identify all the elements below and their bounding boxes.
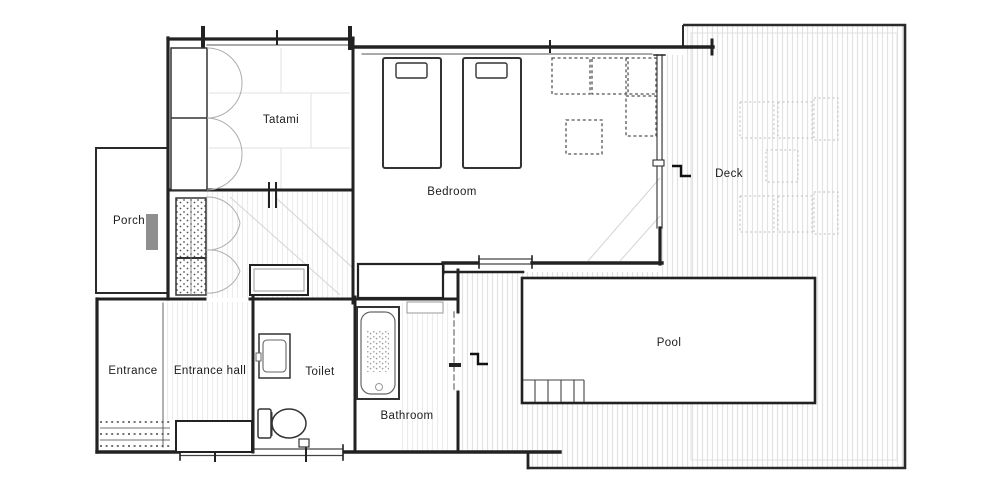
genkan-step-tiles bbox=[100, 422, 170, 446]
room-label-deck: Deck bbox=[715, 168, 743, 180]
toilet-bowl bbox=[258, 409, 309, 447]
room-label-entrance: Entrance bbox=[108, 365, 157, 377]
room-label-bedroom: Bedroom bbox=[427, 186, 476, 198]
low-table-dashed bbox=[566, 120, 602, 154]
room-label-pool: Pool bbox=[657, 337, 682, 349]
room-label-entrance-hall: Entrance hall bbox=[174, 365, 246, 377]
closets bbox=[171, 48, 207, 295]
washbasin bbox=[256, 334, 290, 378]
single-bed bbox=[463, 58, 521, 168]
pillow bbox=[476, 63, 507, 78]
pillow bbox=[396, 63, 427, 78]
room-label-bathroom: Bathroom bbox=[380, 410, 433, 422]
floor-plan: Tatami Bedroom Deck Porch Pool Entrance … bbox=[0, 0, 1000, 500]
floor-plan-drawing: Tatami Bedroom Deck Porch Pool Entrance … bbox=[0, 0, 1000, 500]
sofa-set-dashed bbox=[552, 58, 656, 154]
porch-mat bbox=[146, 214, 158, 250]
room-label-porch: Porch bbox=[113, 215, 145, 227]
beds bbox=[383, 58, 521, 168]
room-label-toilet: Toilet bbox=[305, 366, 335, 378]
bathtub bbox=[357, 307, 399, 399]
closet bbox=[171, 48, 207, 190]
single-bed bbox=[383, 58, 441, 168]
room-label-tatami: Tatami bbox=[263, 114, 299, 126]
paper-holder bbox=[299, 439, 309, 447]
